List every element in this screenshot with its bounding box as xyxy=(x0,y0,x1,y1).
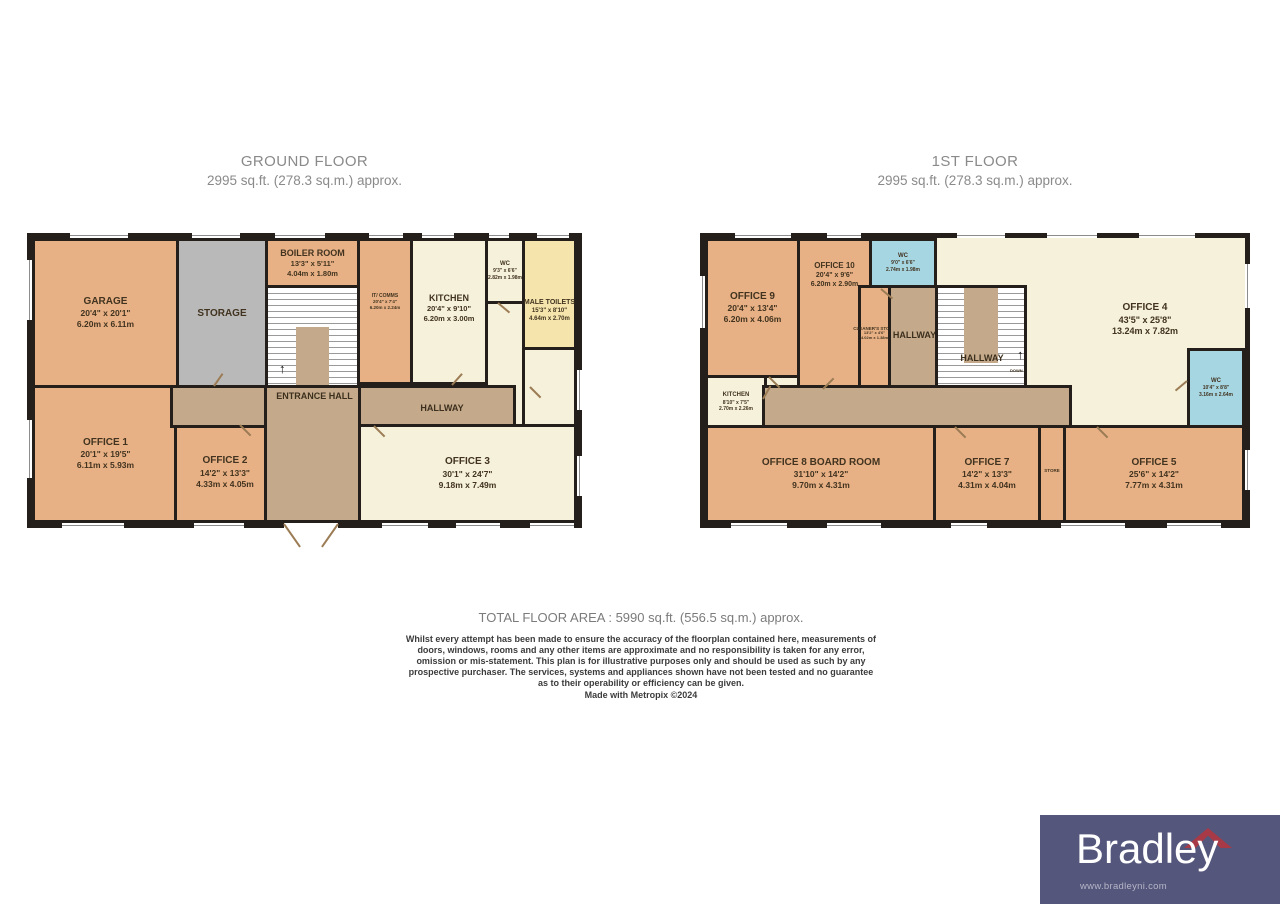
room-office-7: OFFICE 7 14'2" x 13'3" 4.31m x 4.04m xyxy=(933,425,1041,523)
room-office-1-name: OFFICE 1 xyxy=(83,437,128,450)
ground-floor-area: 2995 sq.ft. (278.3 sq.m.) approx. xyxy=(27,172,582,190)
room-male-toilets: MALE TOILETS 15'3" x 8'10" 4.64m x 2.70m xyxy=(522,238,577,350)
room-kitchen-ground-dims-m: 6.20m x 3.00m xyxy=(424,314,475,324)
room-office-2-dims-m: 4.33m x 4.05m xyxy=(196,479,254,490)
door-swing xyxy=(1175,380,1188,391)
room-storage-name: STORAGE xyxy=(197,308,246,321)
room-it-comms-dims-m: 6.20m x 2.24m xyxy=(370,305,401,311)
room-boiler-room-name: BOILER ROOM xyxy=(280,248,345,259)
room-wc-first-right-name: WC xyxy=(1211,378,1221,386)
room-garage-dims-m: 6.20m x 6.11m xyxy=(77,319,134,330)
room-wc-first-right-dims-m: 3.16m x 2.64m xyxy=(1199,392,1233,399)
room-wc-first-top-name: WC xyxy=(898,253,908,261)
window-marker xyxy=(1167,523,1221,528)
room-office-3: OFFICE 3 30'1" x 24'7" 9.18m x 7.49m xyxy=(358,424,577,523)
brand-name: Bradley xyxy=(1076,825,1218,873)
room-office-8-name: OFFICE 8 BOARD ROOM xyxy=(762,457,880,470)
window-marker xyxy=(422,233,454,238)
window-marker xyxy=(1139,233,1195,238)
room-office-5-name: OFFICE 5 xyxy=(1131,457,1176,470)
room-office-4: OFFICE 4 43'5" x 25'8" 13.24m x 7.82m xyxy=(1045,290,1245,350)
room-office-2: OFFICE 2 14'2" x 13'3" 4.33m x 4.05m xyxy=(174,422,276,523)
stairs-up-arrow-first: ↑ xyxy=(1017,348,1024,361)
bradley-logo-block: Bradley www.bradleyni.com xyxy=(1040,815,1280,904)
room-office-7-dims-ft: 14'2" x 13'3" xyxy=(962,469,1012,480)
room-garage: GARAGE 20'4" x 20'1" 6.20m x 6.11m xyxy=(32,238,179,388)
room-wc-first-top: WC 9'0" x 6'6" 2.74m x 1.98m xyxy=(869,238,937,288)
room-kitchen-ground-name: KITCHEN xyxy=(429,293,469,304)
window-marker xyxy=(537,233,569,238)
hallway-label-ground: HALLWAY xyxy=(397,403,487,413)
room-it-comms: IT/ COMMS 20'4" x 7'4" 6.20m x 2.24m xyxy=(357,238,413,385)
stair-landing-ground xyxy=(296,327,330,385)
room-male-toilets-name: MALE TOILETS xyxy=(524,299,575,308)
room-office-5-dims-ft: 25'6" x 14'2" xyxy=(1129,469,1179,480)
stairs-up-arrow-ground: ↑ xyxy=(279,362,286,375)
metropix-credit: Made with Metropix ©2024 xyxy=(405,690,877,701)
window-marker xyxy=(530,523,574,528)
room-wc-ground-dims-m: 2.82m x 1.98m xyxy=(488,275,522,282)
room-office-3-name: OFFICE 3 xyxy=(445,456,490,469)
room-male-toilets-dims-ft: 15'3" x 8'10" xyxy=(532,308,567,316)
room-office-8-dims-m: 9.70m x 4.31m xyxy=(792,480,850,491)
room-office-4-name: OFFICE 4 xyxy=(1122,302,1167,315)
window-marker xyxy=(192,233,240,238)
room-office-2-dims-ft: 14'2" x 13'3" xyxy=(200,468,250,479)
window-marker xyxy=(1047,233,1097,238)
window-marker xyxy=(382,523,428,528)
room-office-7-name: OFFICE 7 xyxy=(964,457,1009,470)
entrance-door-gap xyxy=(284,523,338,528)
room-office-4-dims-m: 13.24m x 7.82m xyxy=(1112,326,1178,338)
room-boiler-room-dims-ft: 13'3" x 5'11" xyxy=(291,259,335,269)
room-office-8-dims-ft: 31'10" x 14'2" xyxy=(794,469,849,480)
room-office-5: OFFICE 5 25'6" x 14'2" 7.77m x 4.31m xyxy=(1063,425,1245,523)
window-marker xyxy=(194,523,244,528)
room-office-4-dims-ft: 43'5" x 25'8" xyxy=(1119,315,1172,327)
room-boiler-room: BOILER ROOM 13'3" x 5'11" 4.04m x 1.80m xyxy=(265,238,360,288)
window-marker xyxy=(70,233,128,238)
hallway-stairs-label: HALLWAY xyxy=(943,353,1021,363)
ground-floor-title: GROUND FLOOR 2995 sq.ft. (278.3 sq.m.) a… xyxy=(27,152,582,189)
room-garage-dims-ft: 20'4" x 20'1" xyxy=(81,308,131,319)
room-kitchen-first: KITCHEN 8'10" x 7'5" 2.70m x 2.26m xyxy=(705,375,767,430)
hallway-band-first xyxy=(762,385,1072,428)
room-office-1-dims-ft: 20'1" x 19'5" xyxy=(81,449,131,460)
room-wc-ground-name: WC xyxy=(500,261,510,269)
room-kitchen-ground-dims-ft: 20'4" x 9'10" xyxy=(427,304,471,314)
room-office-10-dims-ft: 20'4" x 9'6" xyxy=(816,271,853,280)
window-marker xyxy=(27,260,32,320)
ground-floor-plan: GARAGE 20'4" x 20'1" 6.20m x 6.11m OFFIC… xyxy=(27,233,582,528)
room-wc-first-top-dims-m: 2.74m x 1.98m xyxy=(886,267,920,274)
entrance-corridor xyxy=(264,385,361,523)
window-marker xyxy=(27,420,32,478)
window-marker xyxy=(731,523,787,528)
room-office-1: OFFICE 1 20'1" x 19'5" 6.11m x 5.93m xyxy=(32,385,179,523)
footer-block: TOTAL FLOOR AREA : 5990 sq.ft. (556.5 sq… xyxy=(405,610,877,701)
room-office-1-dims-m: 6.11m x 5.93m xyxy=(77,460,134,471)
room-kitchen-first-dims-m: 2.70m x 2.26m xyxy=(719,406,753,413)
window-marker xyxy=(827,233,861,238)
room-office-3-dims-m: 9.18m x 7.49m xyxy=(439,480,497,491)
total-floor-area: TOTAL FLOOR AREA : 5990 sq.ft. (556.5 sq… xyxy=(405,610,877,625)
window-marker xyxy=(1245,264,1250,308)
window-marker xyxy=(62,523,124,528)
room-office-9-dims-ft: 20'4" x 13'4" xyxy=(728,303,778,314)
window-marker xyxy=(827,523,881,528)
first-floor-plan: OFFICE 9 20'4" x 13'4" 6.20m x 4.06m KIT… xyxy=(700,233,1250,528)
window-marker xyxy=(577,370,582,410)
room-store-strip-name: STORE xyxy=(1044,468,1059,473)
window-marker xyxy=(735,233,791,238)
floorplan-page: GROUND FLOOR 2995 sq.ft. (278.3 sq.m.) a… xyxy=(0,0,1280,904)
first-floor-name: 1ST FLOOR xyxy=(700,152,1250,172)
window-marker xyxy=(275,233,325,238)
window-marker xyxy=(489,233,509,238)
room-office-5-dims-m: 7.77m x 4.31m xyxy=(1125,480,1183,491)
room-boiler-room-dims-m: 4.04m x 1.80m xyxy=(287,269,338,279)
room-store-strip: STORE xyxy=(1038,425,1066,523)
room-male-toilets-dims-m: 4.64m x 2.70m xyxy=(529,316,570,324)
ground-floor-name: GROUND FLOOR xyxy=(27,152,582,172)
window-marker xyxy=(456,523,500,528)
first-floor-area: 2995 sq.ft. (278.3 sq.m.) approx. xyxy=(700,172,1250,190)
entrance-hall-label: ENTRANCE HALL xyxy=(247,391,382,401)
room-kitchen-ground: KITCHEN 20'4" x 9'10" 6.20m x 3.00m xyxy=(410,238,488,385)
disclaimer-text: Whilst every attempt has been made to en… xyxy=(405,634,877,689)
room-office-7-dims-m: 4.31m x 4.04m xyxy=(958,480,1016,491)
room-wc-first-right: WC 10'4" x 8'8" 3.16m x 2.64m xyxy=(1187,348,1245,428)
room-office-9-dims-m: 6.20m x 4.06m xyxy=(724,314,782,325)
window-marker xyxy=(369,233,403,238)
first-floor-title: 1ST FLOOR 2995 sq.ft. (278.3 sq.m.) appr… xyxy=(700,152,1250,189)
room-garage-name: GARAGE xyxy=(84,296,128,309)
brand-website: www.bradleyni.com xyxy=(1080,881,1167,892)
window-marker xyxy=(577,456,582,496)
window-marker xyxy=(700,276,705,328)
window-marker xyxy=(1061,523,1125,528)
room-storage: STORAGE xyxy=(176,238,268,390)
room-office-8-board-room: OFFICE 8 BOARD ROOM 31'10" x 14'2" 9.70m… xyxy=(705,425,937,523)
room-office-10-name: OFFICE 10 xyxy=(814,261,854,271)
stairs-down-label: DOWN xyxy=(1010,368,1023,373)
room-office-2-name: OFFICE 2 xyxy=(202,455,247,468)
room-office-9: OFFICE 9 20'4" x 13'4" 6.20m x 4.06m xyxy=(705,238,800,378)
window-marker xyxy=(951,523,987,528)
room-office-10-dims-m: 6.20m x 2.90m xyxy=(811,280,858,289)
room-office-3-dims-ft: 30'1" x 24'7" xyxy=(443,469,493,480)
room-wc-ground: WC 9'3" x 6'6" 2.82m x 1.98m xyxy=(485,238,525,304)
room-office-9-name: OFFICE 9 xyxy=(730,291,775,304)
room-kitchen-first-name: KITCHEN xyxy=(723,392,750,400)
window-marker xyxy=(1245,450,1250,490)
window-marker xyxy=(957,233,1005,238)
